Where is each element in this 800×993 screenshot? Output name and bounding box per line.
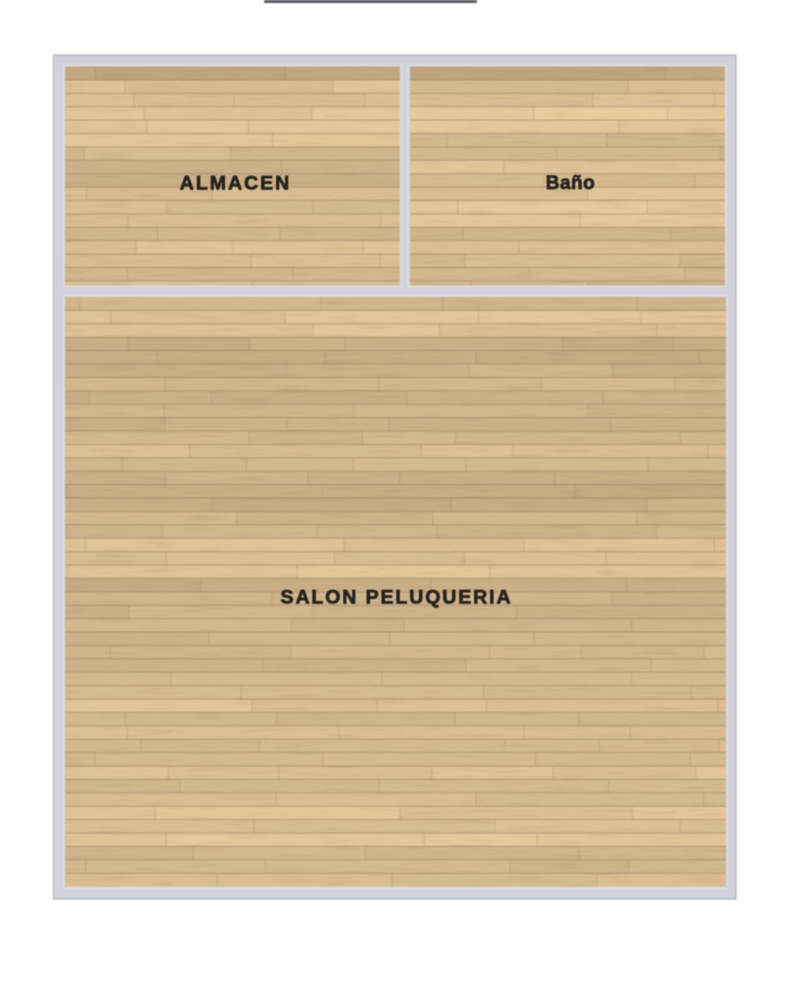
svg-text:ALMACEN: ALMACEN [180, 173, 292, 195]
svg-text:Baño: Baño [546, 173, 596, 194]
svg-text:SALON PELUQUERIA: SALON PELUQUERIA [281, 587, 513, 609]
